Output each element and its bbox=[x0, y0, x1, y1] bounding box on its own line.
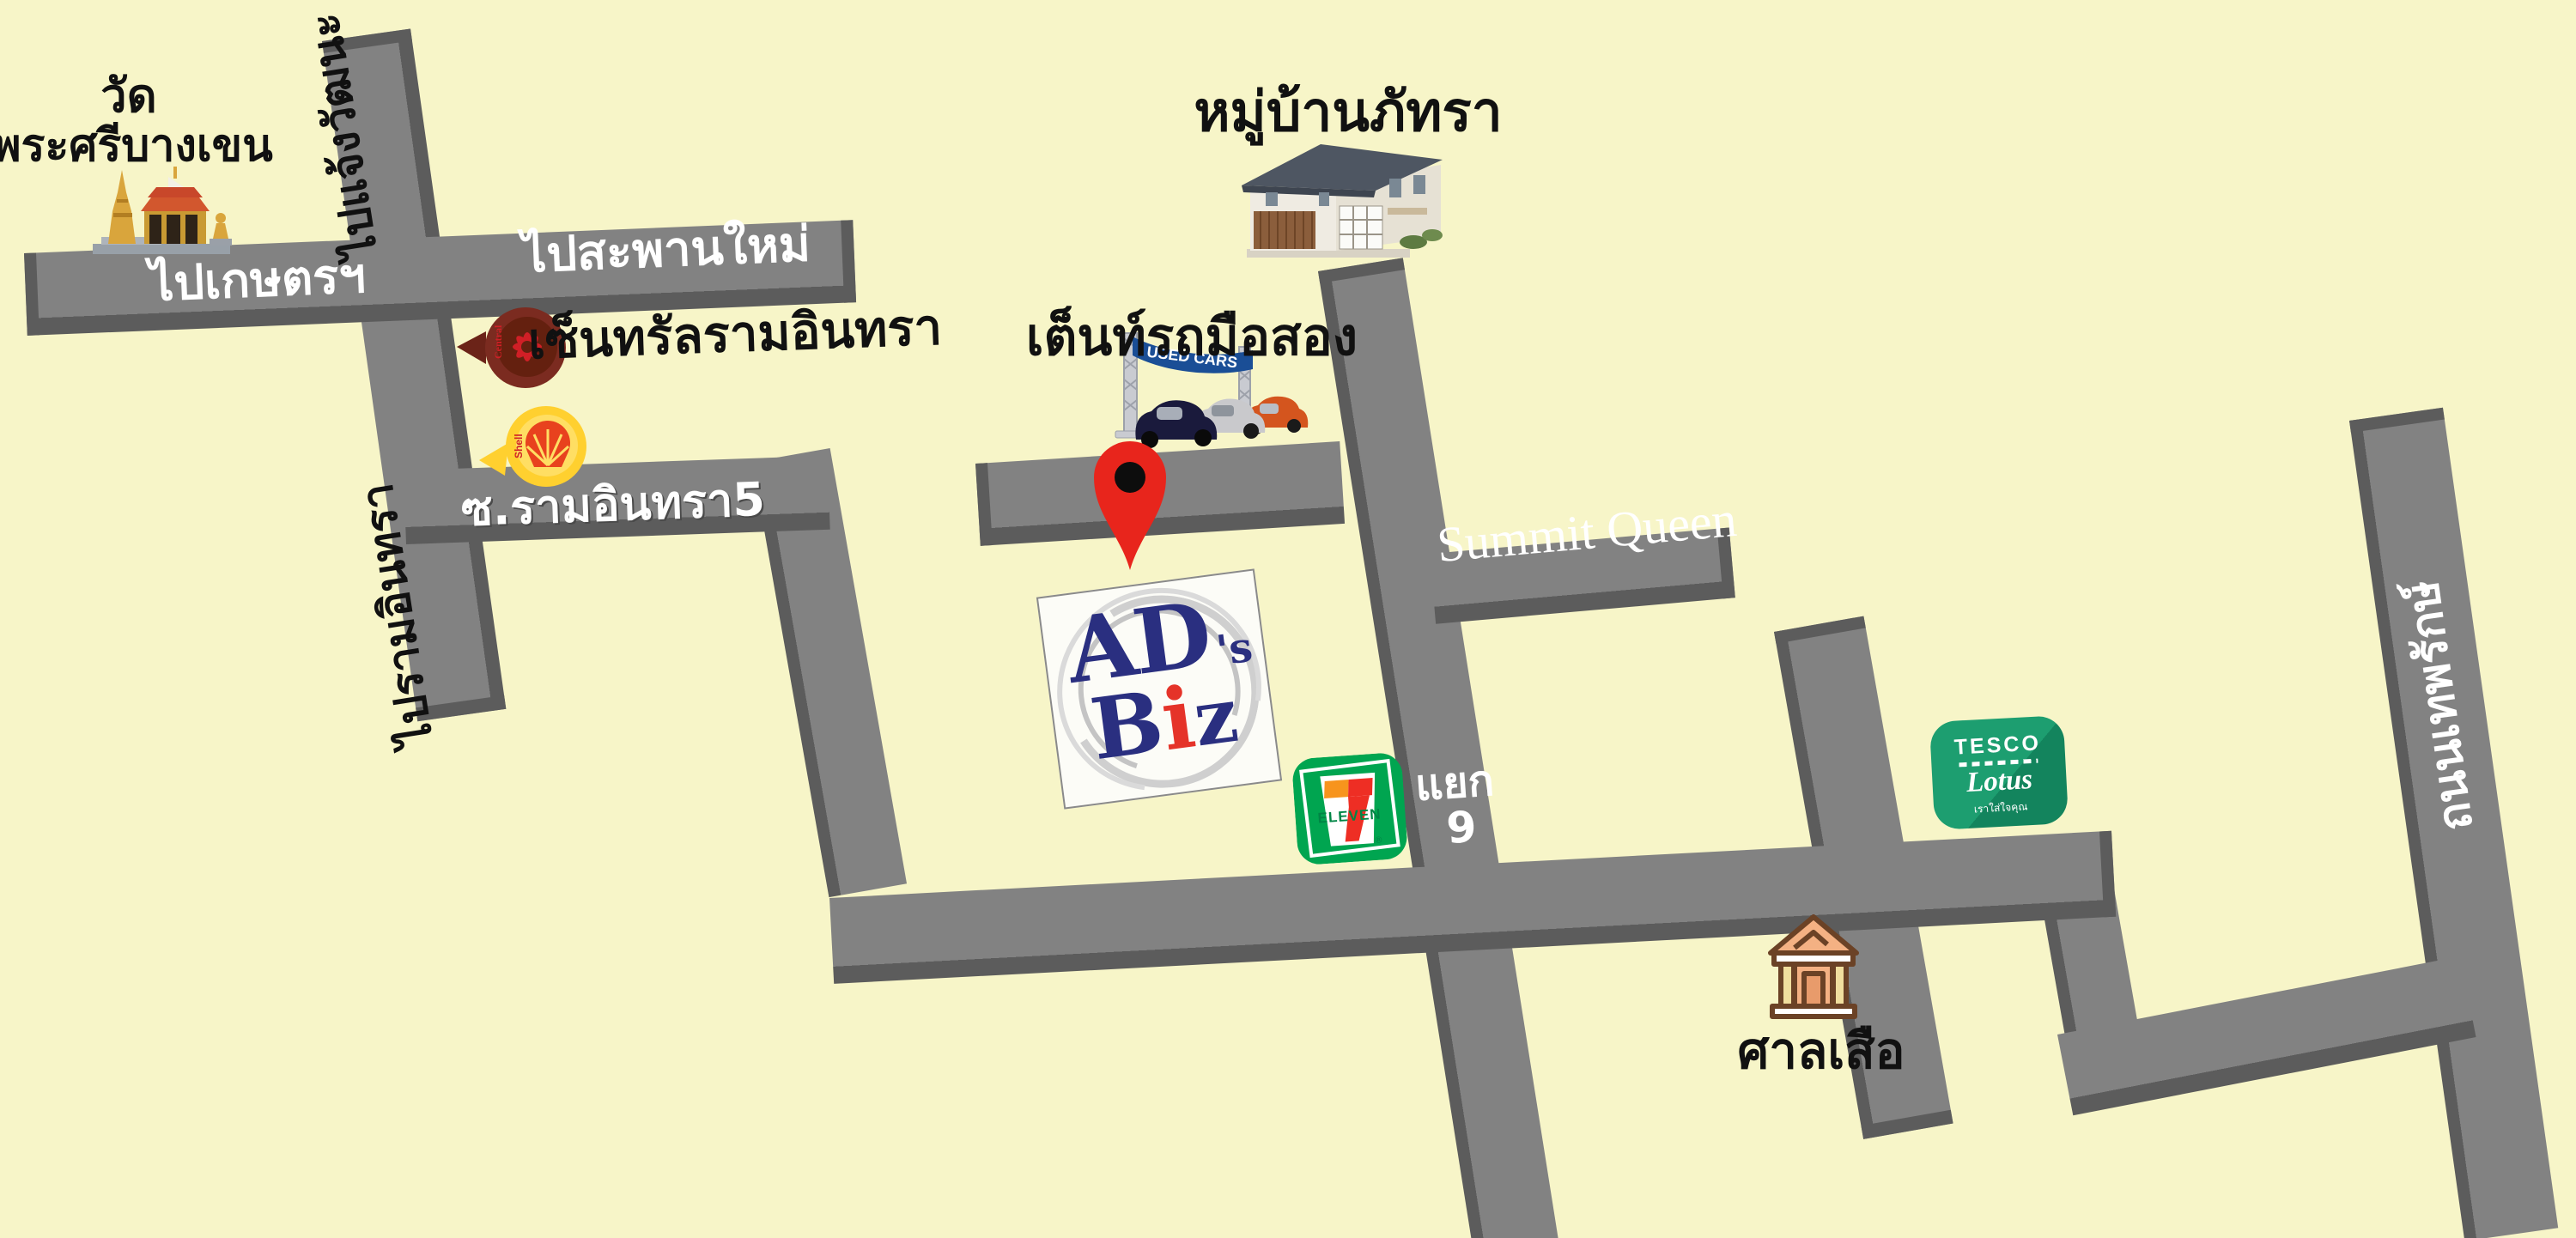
label-to-kaset: ไปเกษตรฯ bbox=[149, 252, 367, 309]
central-brand-text: Central bbox=[492, 325, 504, 359]
shell-brand-text: Shell bbox=[513, 434, 525, 458]
ads-biz-logo: AD 's Biz bbox=[1036, 568, 1282, 809]
pin-center-dot bbox=[1115, 462, 1145, 493]
label-to-saphan-mai: ไปสะพานใหม่ bbox=[521, 221, 811, 280]
house-window bbox=[1266, 192, 1278, 206]
tesco-slogan-text: เราใส่ใจคุณ bbox=[1934, 797, 2069, 820]
shrine-column bbox=[1781, 964, 1794, 1006]
road-village-junction9-vertical bbox=[1318, 258, 1561, 1238]
temple-icon bbox=[82, 161, 239, 258]
svg-text:®: ® bbox=[1374, 835, 1383, 846]
temple-roof bbox=[141, 197, 210, 211]
label-central-ramintra: เซ็นทรัลรามอินทรา bbox=[527, 302, 943, 367]
central-pointer bbox=[457, 331, 486, 364]
map-canvas: Central Shell bbox=[0, 0, 2576, 1238]
seven-orange-bar bbox=[1323, 780, 1350, 798]
shrine-column bbox=[1833, 964, 1846, 1006]
ads-apostrophe-s: 's bbox=[1214, 627, 1255, 672]
shell-pecten-emblem bbox=[526, 421, 570, 467]
label-sala-suea: ศาลเสือ bbox=[1738, 1026, 1905, 1076]
seven-eleven-icon: ELEVEN ® bbox=[1291, 752, 1408, 866]
label-temple-line1: วัด bbox=[100, 73, 156, 119]
village-house-icon bbox=[1236, 134, 1448, 273]
buddha-statue bbox=[216, 213, 226, 223]
label-mooban-phatra: หมู่บ้านภัทรา bbox=[1194, 85, 1502, 140]
location-pin-icon bbox=[1085, 429, 1175, 573]
house-garage-door bbox=[1254, 211, 1315, 249]
shrine-door bbox=[1804, 974, 1823, 1006]
house-glass-door bbox=[1340, 206, 1382, 249]
shrine-base bbox=[1772, 1006, 1855, 1016]
label-junction-word: แยก bbox=[1413, 759, 1495, 807]
tesco-text: TESCO bbox=[1930, 730, 2065, 762]
label-used-car-tent: เต็นท์รถมือสอง bbox=[1026, 312, 1358, 363]
tesco-lotus-icon: TESCO Lotus เราใส่ใจคุณ bbox=[1929, 715, 2069, 830]
temple-chedi bbox=[108, 170, 136, 244]
label-soi-ramintra5: ซ.รามอินทรา5 bbox=[460, 476, 766, 533]
lotus-text: Lotus bbox=[1932, 762, 2068, 801]
biz-text: Biz bbox=[1086, 671, 1242, 773]
tiger-shrine-icon bbox=[1760, 908, 1867, 1025]
label-temple-line2: พระศรีบางเขน bbox=[0, 124, 273, 168]
shell-pointer bbox=[479, 443, 508, 476]
label-junction-number: 9 bbox=[1445, 805, 1478, 850]
